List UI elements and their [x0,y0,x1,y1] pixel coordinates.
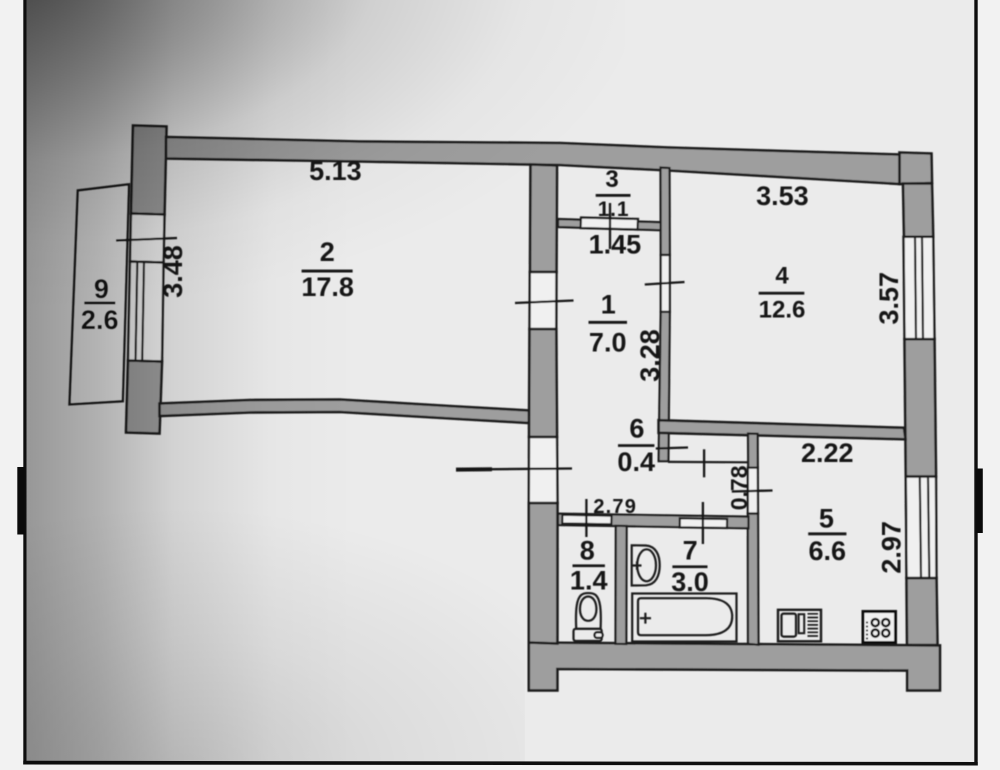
svg-text:4: 4 [775,263,789,290]
svg-text:6: 6 [629,413,644,443]
svg-text:0.4: 0.4 [617,447,655,477]
svg-text:7: 7 [683,536,698,566]
svg-text:2.97: 2.97 [877,521,907,574]
svg-text:7.0: 7.0 [589,328,627,358]
svg-text:1.4: 1.4 [570,566,608,596]
svg-text:3.28: 3.28 [635,329,665,382]
svg-text:5: 5 [819,503,834,533]
svg-text:12.6: 12.6 [759,296,806,323]
svg-text:8: 8 [580,536,595,566]
svg-text:3.53: 3.53 [756,181,809,211]
svg-text:3.0: 3.0 [671,567,709,597]
svg-text:6.6: 6.6 [809,536,847,566]
svg-text:2.79: 2.79 [593,496,637,518]
svg-text:3.57: 3.57 [874,272,904,325]
svg-text:0.78: 0.78 [726,465,752,510]
svg-text:2.22: 2.22 [801,438,854,468]
